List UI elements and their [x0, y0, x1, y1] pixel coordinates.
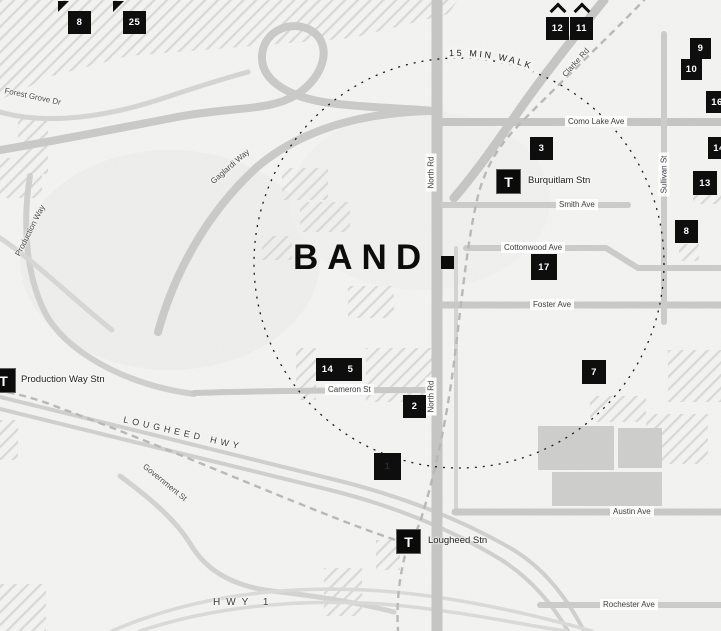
skytrain-station-burquitlam-icon[interactable]: T — [496, 169, 521, 194]
poi-marker[interactable]: 12 — [546, 17, 569, 40]
building-blocks-layer — [538, 426, 662, 506]
project-title: BAND — [293, 238, 430, 278]
offmap-arrow-upleft-icon — [113, 1, 124, 12]
skytrain-station-lougheed-icon[interactable]: T — [396, 529, 421, 554]
map-canvas: 15 MIN WALK 8 25 12 11 9 10 16 14 13 8 3… — [0, 0, 721, 631]
poi-marker[interactable]: 9 — [690, 38, 711, 59]
poi-marker[interactable]: 13 — [693, 171, 717, 195]
street-label-foster-ave: Foster Ave — [530, 299, 574, 310]
project-location-dot — [441, 256, 454, 269]
street-label-como-lake-ave: Como Lake Ave — [565, 116, 627, 127]
street-label-austin-ave: Austin Ave — [610, 506, 654, 517]
street-label-smith-ave: Smith Ave — [556, 199, 598, 210]
poi-marker[interactable]: 16 — [706, 91, 721, 113]
street-label-cottonwood-ave: Cottonwood Ave — [501, 242, 565, 253]
poi-marker[interactable]: 2 — [403, 395, 426, 418]
station-label-burquitlam: Burquitlam Stn — [528, 175, 590, 186]
station-label-lougheed: Lougheed Stn — [428, 535, 487, 546]
street-label-hwy1: HWY 1 — [213, 597, 275, 608]
street-label-north-rd-lower: North Rd — [426, 377, 437, 415]
poi-marker[interactable]: 25 — [123, 11, 146, 34]
street-label-north-rd-upper: North Rd — [426, 153, 437, 191]
poi-marker[interactable]: 10 — [681, 59, 702, 80]
poi-marker[interactable]: 8 — [675, 220, 698, 243]
poi-marker[interactable]: 7 — [582, 360, 606, 384]
poi-marker[interactable]: 11 — [570, 17, 593, 40]
street-label-sullivan-st: Sullivan St — [658, 153, 669, 197]
street-label-rochester-ave: Rochester Ave — [600, 599, 658, 610]
station-label-production-way: Production Way Stn — [21, 374, 105, 385]
poi-marker[interactable]: 14 — [708, 137, 721, 159]
offmap-arrow-upleft-icon — [58, 1, 69, 12]
skytrain-station-production-way-icon[interactable]: T — [0, 368, 16, 393]
poi-marker[interactable]: 1 — [374, 453, 401, 480]
poi-marker[interactable]: 17 — [531, 254, 557, 280]
poi-marker[interactable]: 5 — [339, 358, 362, 381]
poi-marker[interactable]: 14 — [316, 358, 339, 381]
road-cameron-st — [194, 390, 434, 393]
poi-marker[interactable]: 3 — [530, 137, 553, 160]
poi-marker[interactable]: 8 — [68, 11, 91, 34]
street-label-cameron-st: Cameron St — [325, 384, 374, 395]
map-base-layer: 15 MIN WALK — [0, 0, 721, 631]
